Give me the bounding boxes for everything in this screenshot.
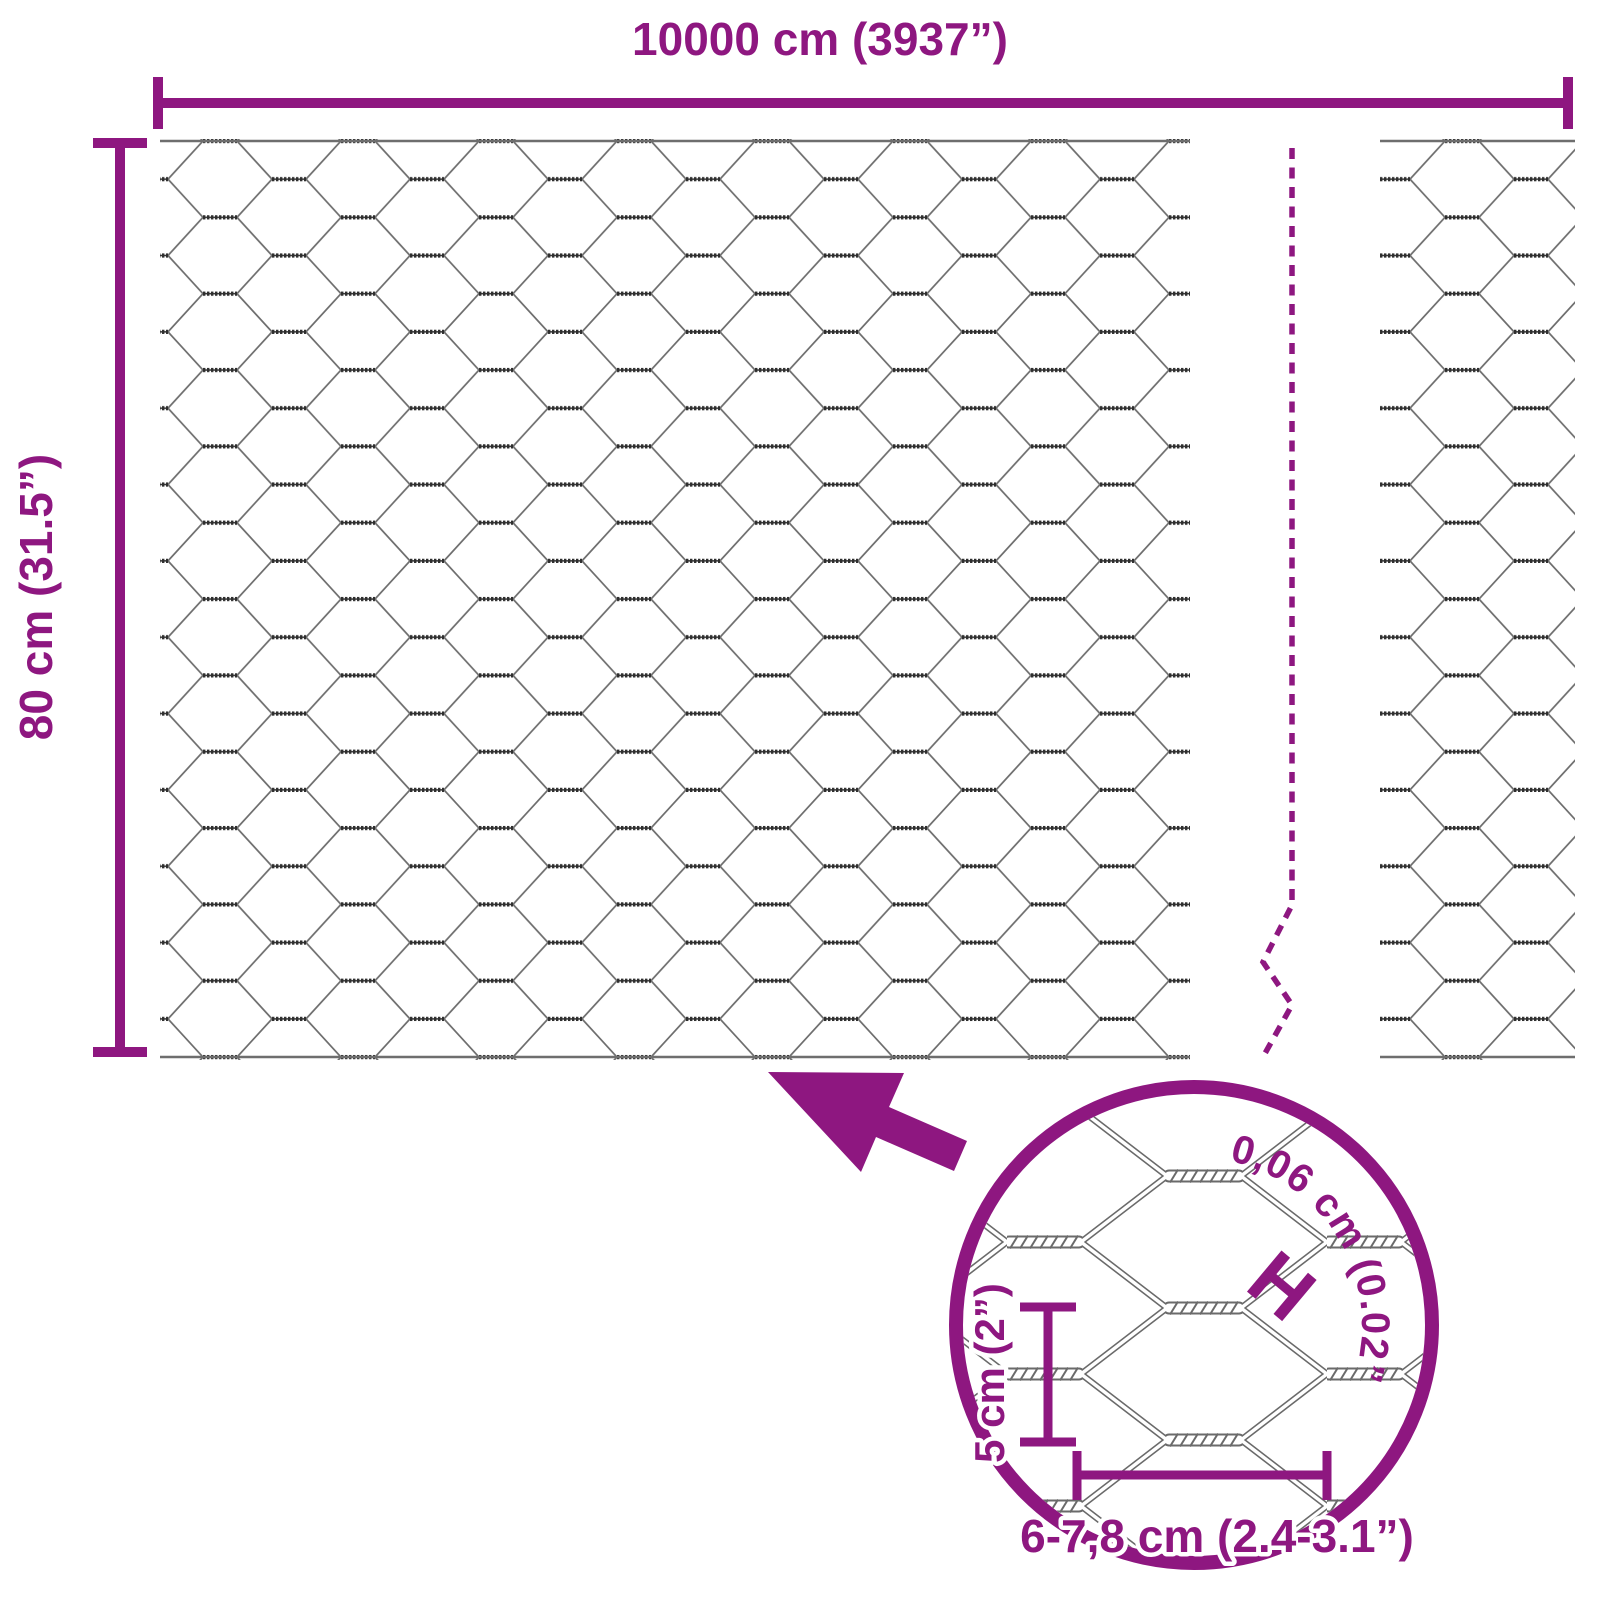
height-dimension-label: 80 cm (31.5”) xyxy=(10,454,62,740)
width-dimension-label: 10000 cm (3937”) xyxy=(632,13,1008,65)
product-diagram: 10000 cm (3937”) 80 cm (31.5”) 5 cm (2”)… xyxy=(0,0,1600,1600)
cell-height-label: 5 cm (2”) xyxy=(966,1283,1013,1463)
diagram-svg: 10000 cm (3937”) 80 cm (31.5”) 5 cm (2”)… xyxy=(0,0,1600,1600)
mesh-panel-left xyxy=(160,139,1190,1060)
mesh-panel-right xyxy=(1380,139,1575,1060)
cell-width-label: 6-7,8 cm (2.4-3.1”) xyxy=(1020,1510,1414,1562)
